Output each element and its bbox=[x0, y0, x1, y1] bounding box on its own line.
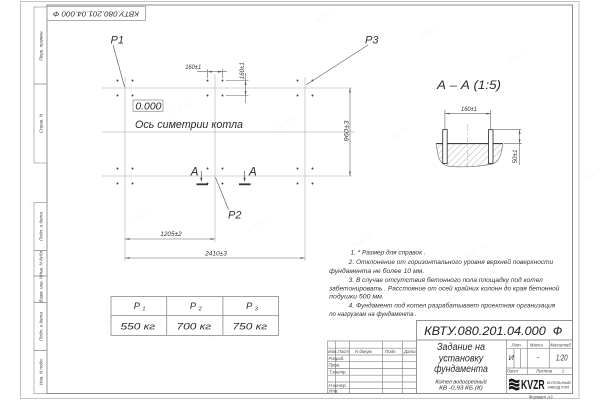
svg-text:P: P bbox=[190, 301, 197, 311]
svg-text:-: - bbox=[537, 355, 540, 362]
svg-text:50±1: 50±1 bbox=[512, 150, 519, 164]
svg-text:1: 1 bbox=[142, 307, 145, 313]
svg-text:фундамента не более 10 мм.: фундамента не более 10 мм. bbox=[329, 267, 424, 275]
svg-text:Котел водогрейный: Котел водогрейный bbox=[435, 379, 486, 386]
svg-text:Ф: Ф bbox=[553, 324, 563, 338]
svg-text:забетонировать . Расстояние: забетонировать . Расстояние от осей край… bbox=[328, 284, 560, 292]
svg-text:2. Отклонение от горизонтал: 2. Отклонение от горизонтального уровня … bbox=[348, 258, 554, 266]
svg-text:Изм.Лист: Изм.Лист bbox=[328, 349, 349, 354]
svg-text:Дата: Дата bbox=[403, 349, 416, 354]
svg-text:kvzr.ru: kvzr.ru bbox=[276, 115, 297, 132]
svg-text:Разраб.: Разраб. bbox=[329, 356, 345, 361]
svg-text:Перв. примен.: Перв. примен. bbox=[39, 30, 44, 61]
svg-text:KVZR: KVZR bbox=[521, 377, 545, 392]
svg-text:960±3: 960±3 bbox=[343, 120, 350, 142]
svg-text:Формат А3: Формат А3 bbox=[529, 395, 553, 400]
svg-text:подушки 500 мм.: подушки 500 мм. bbox=[329, 293, 384, 301]
svg-text:kvzr.ru: kvzr.ru bbox=[465, 242, 486, 259]
svg-text:160±1: 160±1 bbox=[239, 62, 246, 79]
svg-text:Инв. N подл.: Инв. N подл. bbox=[39, 358, 44, 385]
svg-text:фундамента: фундамента bbox=[434, 363, 488, 375]
svg-text:P1: P1 bbox=[111, 35, 124, 47]
svg-text:ЗАВОД РЭП: ЗАВОД РЭП bbox=[547, 384, 569, 389]
svg-text:Утв.: Утв. bbox=[329, 389, 339, 394]
svg-text:3: 3 bbox=[255, 307, 259, 313]
svg-text:P3: P3 bbox=[365, 35, 379, 47]
svg-text:P2: P2 bbox=[228, 210, 241, 222]
svg-text:1. * Размер для справок .: 1. * Размер для справок . bbox=[351, 248, 426, 256]
svg-text:А – А (1:5): А – А (1:5) bbox=[436, 80, 501, 92]
svg-text:Инв. N дубл.: Инв. N дубл. bbox=[39, 250, 44, 277]
svg-text:160±1: 160±1 bbox=[185, 64, 201, 71]
svg-text:Подп.: Подп. bbox=[385, 349, 397, 354]
svg-text:kvzr.ru: kvzr.ru bbox=[170, 100, 191, 117]
svg-text:КВТУ.080.201.04.000 Ф: КВТУ.080.201.04.000 Ф bbox=[53, 10, 139, 19]
svg-text:550 кг: 550 кг bbox=[121, 321, 156, 331]
svg-text:Подп. и дата: Подп. и дата bbox=[39, 312, 44, 341]
svg-text:0.000: 0.000 bbox=[135, 102, 161, 113]
svg-text:kvzr.ru: kvzr.ru bbox=[209, 325, 230, 342]
svg-text:по нагрузкам на фундамента .: по нагрузкам на фундамента . bbox=[329, 310, 417, 318]
svg-text:Листов: Листов bbox=[535, 369, 553, 374]
svg-text:kvzr.ru: kvzr.ru bbox=[583, 166, 600, 183]
svg-text:kvzr.ru: kvzr.ru bbox=[418, 22, 439, 39]
svg-text:Т.контр.: Т.контр. bbox=[329, 370, 347, 375]
svg-text:kvzr.ru: kvzr.ru bbox=[507, 48, 528, 65]
svg-text:2: 2 bbox=[198, 307, 202, 313]
svg-text:160±1: 160±1 bbox=[461, 106, 477, 113]
svg-text:1:20: 1:20 bbox=[556, 354, 568, 363]
svg-text:N докум.: N докум. bbox=[355, 349, 373, 354]
svg-text:2410±3: 2410±3 bbox=[204, 250, 227, 257]
svg-text:kvzr.ru: kvzr.ru bbox=[133, 208, 154, 225]
svg-text:P: P bbox=[246, 301, 253, 311]
svg-text:Масса: Масса bbox=[530, 343, 544, 348]
svg-text:А: А bbox=[248, 167, 257, 179]
svg-text:P: P bbox=[134, 301, 141, 311]
svg-text:Справ. N: Справ. N bbox=[39, 113, 44, 133]
svg-text:kvzr.ru: kvzr.ru bbox=[247, 217, 268, 234]
svg-text:Н.контр.: Н.контр. bbox=[329, 383, 348, 388]
svg-text:1205±2: 1205±2 bbox=[160, 231, 182, 238]
svg-text:1: 1 bbox=[562, 369, 565, 374]
svg-text:Взам. инв. N: Взам. инв. N bbox=[39, 275, 44, 302]
svg-text:установку: установку bbox=[438, 353, 484, 364]
svg-text:Масштаб: Масштаб bbox=[550, 343, 571, 348]
svg-text:Пров.: Пров. bbox=[329, 363, 341, 368]
svg-text:КВТУ.080.201.04.000: КВТУ.080.201.04.000 bbox=[424, 324, 546, 338]
svg-text:4. Фундамент под котел раз: 4. Фундамент под котел разрабатывает про… bbox=[349, 302, 556, 310]
svg-text:Лист: Лист bbox=[506, 369, 519, 374]
svg-text:kvzr.ru: kvzr.ru bbox=[352, 232, 373, 249]
svg-text:КВ -0,93 КБ (К): КВ -0,93 КБ (К) bbox=[439, 386, 483, 392]
svg-text:Подп. и дата: Подп. и дата bbox=[39, 212, 44, 241]
svg-text:Лит.: Лит. bbox=[511, 343, 522, 348]
svg-text:kvzr.ru: kvzr.ru bbox=[28, 193, 49, 210]
svg-text:3. В случае отсутствия бет: 3. В случае отсутствия бетонного пола пл… bbox=[349, 276, 544, 284]
svg-text:kvzr.ru: kvzr.ru bbox=[313, 7, 334, 24]
svg-text:Задание на: Задание на bbox=[437, 342, 485, 353]
svg-text:А: А bbox=[190, 167, 199, 179]
svg-text:kvzr.ru: kvzr.ru bbox=[389, 125, 410, 142]
svg-text:700 кг: 700 кг bbox=[177, 321, 212, 331]
svg-text:750 кг: 750 кг bbox=[233, 321, 268, 331]
svg-text:Ось симетрии котла: Ось симетрии котла bbox=[135, 119, 243, 131]
